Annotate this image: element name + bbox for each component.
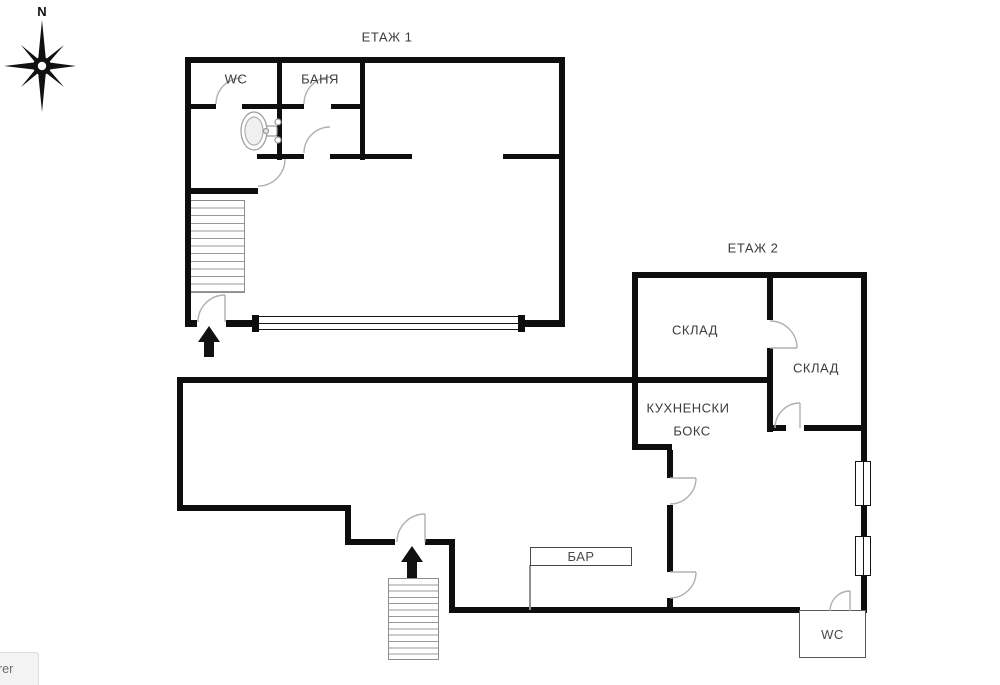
room-label-storage-left: СКЛАД bbox=[672, 323, 718, 338]
room-label-storage-right: СКЛАД bbox=[793, 361, 839, 376]
room-label-wc-floor1: WC bbox=[225, 72, 248, 87]
entrance-arrow-icon bbox=[401, 546, 423, 578]
compass-north-label: N bbox=[37, 4, 46, 19]
door-arc bbox=[198, 295, 225, 322]
door-arc bbox=[397, 514, 425, 542]
sink-icon bbox=[241, 112, 281, 150]
room-label-kitchen-line1: КУХНЕНСКИ bbox=[647, 401, 730, 416]
floor-plan-canvas: ЕТАЖ 1 WC БАНЯ ЕТАЖ 2 СКЛАД СКЛАД КУХНЕН… bbox=[0, 0, 1000, 685]
door-arc bbox=[770, 321, 797, 348]
door-arc bbox=[670, 572, 696, 598]
floor2-title: ЕТАЖ 2 bbox=[728, 241, 779, 256]
compass-icon: N bbox=[4, 4, 76, 112]
door-arc bbox=[304, 127, 330, 153]
entrance-arrow-icon bbox=[198, 326, 220, 357]
door-arc bbox=[775, 403, 800, 428]
door-arc bbox=[830, 591, 850, 611]
room-label-bath: БАНЯ bbox=[301, 72, 339, 87]
door-arc bbox=[258, 159, 285, 186]
room-label-kitchen-line2: БОКС bbox=[673, 424, 710, 439]
door-arc bbox=[670, 478, 696, 504]
plan-overlay: N bbox=[0, 0, 1000, 685]
status-bar-text: rer bbox=[0, 662, 13, 676]
floor1-title: ЕТАЖ 1 bbox=[362, 30, 413, 45]
status-bar-tooltip: rer bbox=[0, 652, 39, 685]
